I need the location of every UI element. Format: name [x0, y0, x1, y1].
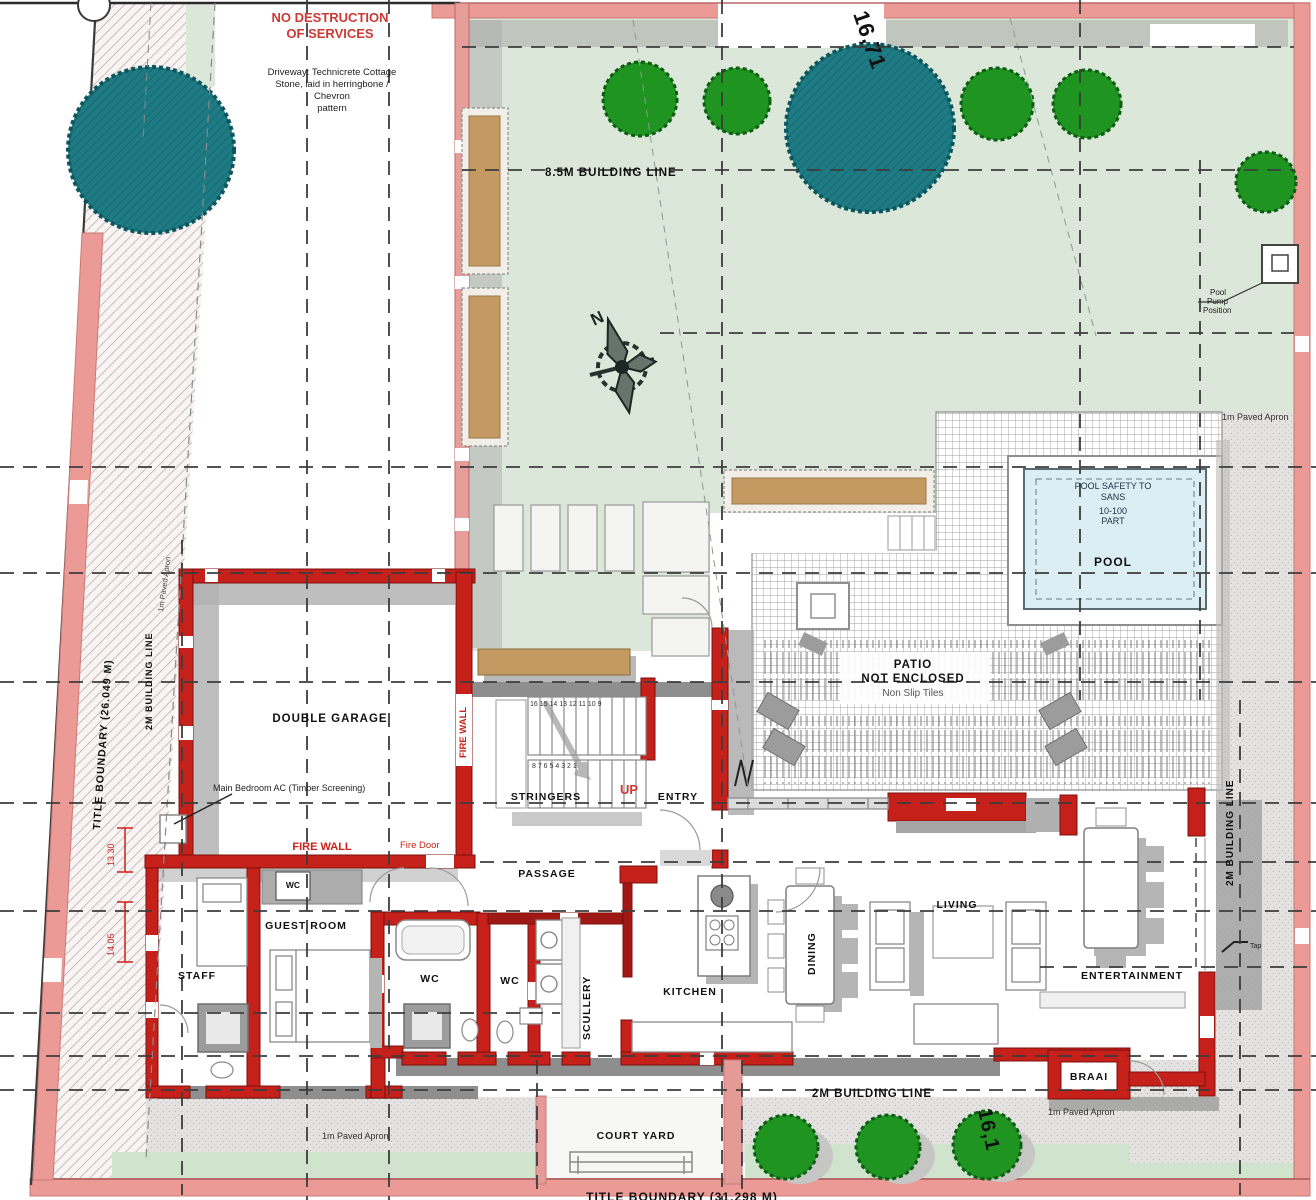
- svg-text:PASSAGE: PASSAGE: [518, 868, 576, 880]
- svg-text:WC: WC: [420, 973, 440, 985]
- svg-text:Fire Door: Fire Door: [400, 840, 440, 851]
- svg-text:KITCHEN: KITCHEN: [663, 986, 717, 998]
- svg-text:POOL SAFETY TO: POOL SAFETY TO: [1075, 481, 1152, 491]
- svg-text:SANS: SANS: [1101, 492, 1126, 502]
- svg-text:PATIO: PATIO: [894, 659, 932, 671]
- svg-text:14.05: 14.05: [106, 933, 116, 956]
- svg-text:DOUBLE GARAGE: DOUBLE GARAGE: [272, 713, 387, 725]
- svg-text:Non Slip Tiles: Non Slip Tiles: [882, 688, 943, 699]
- svg-text:FIRE WALL: FIRE WALL: [458, 707, 469, 758]
- svg-text:COURT YARD: COURT YARD: [597, 1130, 676, 1142]
- svg-text:ENTERTAINMENT: ENTERTAINMENT: [1081, 970, 1183, 982]
- svg-text:10-100: 10-100: [1099, 506, 1127, 516]
- svg-text:Stone, laid in herringbone /: Stone, laid in herringbone /: [275, 79, 389, 90]
- svg-text:BRAAI: BRAAI: [1070, 1071, 1108, 1083]
- svg-text:1m Paved Apron: 1m Paved Apron: [1222, 412, 1289, 422]
- svg-text:Pump: Pump: [1207, 297, 1228, 306]
- svg-text:GUEST ROOM: GUEST ROOM: [265, 920, 347, 932]
- svg-text:8 7 6 5 4 3 2 1: 8 7 6 5 4 3 2 1: [532, 763, 577, 770]
- svg-text:13.30: 13.30: [106, 843, 116, 866]
- svg-text:PART: PART: [1101, 516, 1125, 526]
- svg-text:TITLE BOUNDARY (31.298 M): TITLE BOUNDARY (31.298 M): [586, 1190, 778, 1200]
- svg-text:STAFF: STAFF: [178, 970, 216, 982]
- svg-text:Driveway: Technicrete Cottage: Driveway: Technicrete Cottage: [268, 67, 397, 78]
- svg-text:LIVING: LIVING: [936, 899, 977, 911]
- svg-text:pattern: pattern: [317, 103, 347, 114]
- svg-text:2M BUILDING LINE: 2M BUILDING LINE: [1225, 779, 1236, 886]
- svg-text:2M BUILDING LINE: 2M BUILDING LINE: [144, 632, 154, 730]
- svg-text:NO DESTRUCTION: NO DESTRUCTION: [272, 10, 389, 25]
- svg-text:Main Bedroom AC (Timber Screen: Main Bedroom AC (Timber Screening): [213, 783, 365, 793]
- svg-text:Tap: Tap: [1250, 943, 1261, 950]
- svg-text:POOL: POOL: [1094, 555, 1132, 569]
- svg-text:DINING: DINING: [806, 932, 818, 975]
- svg-text:1m Paved Apron: 1m Paved Apron: [322, 1131, 389, 1141]
- svg-text:Position: Position: [1203, 306, 1231, 315]
- svg-text:ENTRY: ENTRY: [658, 791, 698, 803]
- svg-text:NOT ENCLOSED: NOT ENCLOSED: [861, 673, 964, 685]
- svg-text:OF SERVICES: OF SERVICES: [286, 26, 374, 41]
- svg-text:SCULLERY: SCULLERY: [581, 976, 593, 1040]
- svg-text:2M BUILDING LINE: 2M BUILDING LINE: [812, 1088, 932, 1100]
- svg-text:8.5M BUILDING LINE: 8.5M BUILDING LINE: [545, 167, 677, 179]
- svg-text:Pool: Pool: [1210, 288, 1226, 297]
- svg-text:1m Paved Apron: 1m Paved Apron: [1048, 1107, 1115, 1117]
- svg-text:WC: WC: [286, 880, 300, 890]
- svg-text:UP: UP: [620, 782, 638, 797]
- svg-text:STRINGERS: STRINGERS: [511, 791, 581, 803]
- svg-text:WC: WC: [500, 975, 520, 987]
- svg-text:Chevron: Chevron: [314, 91, 350, 102]
- svg-text:FIRE WALL: FIRE WALL: [292, 841, 352, 853]
- svg-text:16 15 14 13 12 11 10 9: 16 15 14 13 12 11 10 9: [530, 701, 602, 708]
